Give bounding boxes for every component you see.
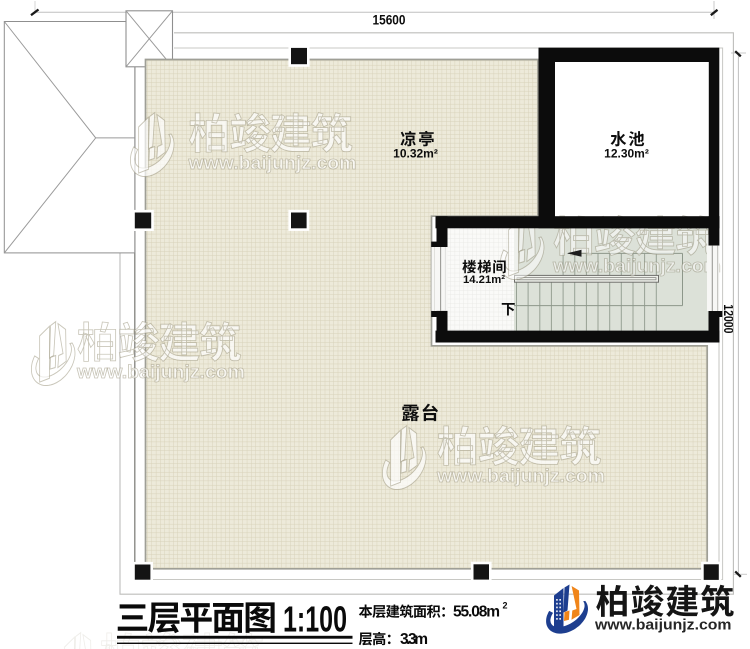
svg-text:2: 2 xyxy=(503,601,508,611)
svg-text:3.3m: 3.3m xyxy=(400,631,428,648)
svg-text:14.21m²: 14.21m² xyxy=(463,274,505,286)
svg-text:www.baijunjz.com: www.baijunjz.com xyxy=(594,618,732,634)
svg-text:www.baijunjz.com: www.baijunjz.com xyxy=(187,152,356,173)
svg-text:15600: 15600 xyxy=(373,13,406,28)
svg-text:www.baijunjz.com: www.baijunjz.com xyxy=(436,465,605,486)
svg-text:12.30m²: 12.30m² xyxy=(604,146,649,160)
svg-text:1:100: 1:100 xyxy=(283,599,347,640)
svg-text:www.baijunjz.com: www.baijunjz.com xyxy=(76,361,245,382)
svg-text:55.08m: 55.08m xyxy=(453,604,500,621)
svg-text:www.baijunjz.com: www.baijunjz.com xyxy=(552,255,721,276)
svg-text:10.32m²: 10.32m² xyxy=(393,146,438,160)
